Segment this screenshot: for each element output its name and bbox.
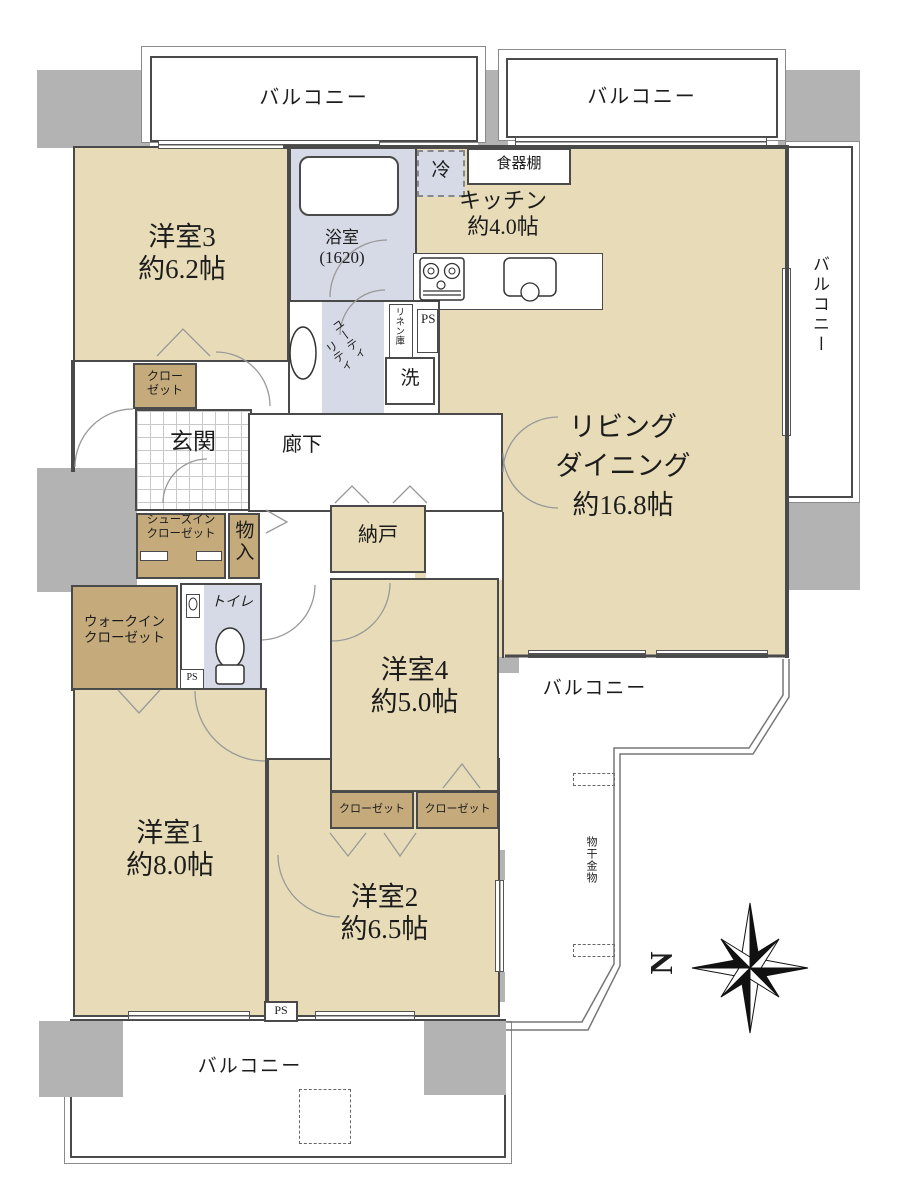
north-label: N — [643, 941, 681, 985]
living-dining-label: リビング ダイニング 約16.8帖 — [523, 408, 723, 525]
wall-block-left-mid — [37, 468, 137, 592]
refrigerator-label: 冷 — [417, 160, 465, 182]
corridor-gap — [426, 512, 503, 580]
wall-block-top-right — [778, 70, 860, 148]
evacuation-hatch — [299, 1089, 351, 1144]
bathroom-label: 浴室 (1620) — [292, 228, 392, 268]
closet-b-label: クローゼット — [416, 803, 499, 816]
balcony-top-right-label: バルコニー — [506, 86, 778, 110]
pipe-space-bottom-label: PS — [264, 1003, 298, 1017]
storeroom-label: 納戸 — [330, 524, 426, 548]
window-ld-south-1 — [528, 650, 646, 658]
entrance-hall — [135, 409, 252, 511]
window-east-living — [782, 268, 791, 436]
room1-label: 洋室1 約8.0帖 — [73, 818, 267, 882]
entrance-label: 玄関 — [137, 428, 249, 455]
laundry-hardware-label: 物干金物 — [584, 836, 597, 884]
window-room1-south-2 — [315, 1011, 415, 1020]
room4-label: 洋室4 約5.0帖 — [330, 655, 499, 719]
balcony-mid-label: バルコニー — [505, 678, 685, 700]
washer-label: 洗 — [385, 368, 435, 390]
pipe-space-utility-label: PS — [417, 311, 438, 326]
window-top-left — [158, 140, 380, 149]
toilet-label: トイレ — [204, 595, 260, 612]
balcony-right-label: バルコニー — [809, 255, 829, 355]
kitchen-counter — [413, 253, 603, 310]
walk-in-closet-label: ウォークイン クローゼット — [71, 614, 178, 646]
bathtub — [299, 156, 399, 216]
laundry-hardware-1 — [573, 773, 615, 786]
window-ld-south-2 — [656, 650, 768, 658]
hallway-label: 廊下 — [252, 434, 352, 458]
room3-label: 洋室3 約6.2帖 — [77, 222, 287, 286]
shoes-closet-slot-1 — [140, 551, 168, 561]
corridor — [248, 413, 503, 512]
kitchen-label: キッチン 約4.0帖 — [413, 188, 593, 240]
linen-label: リネン庫 — [392, 307, 403, 345]
closet-a-label: クローゼット — [330, 803, 414, 816]
window-room1-south-1 — [128, 1011, 250, 1020]
wall-block-bottom-left-2 — [39, 1021, 123, 1097]
shoes-closet-slot-2 — [196, 551, 222, 561]
toilet-paper-holder — [186, 594, 200, 618]
cupboard-label: 食器棚 — [467, 156, 571, 174]
pipe-space-toilet-label: PS — [180, 672, 204, 684]
room2-label: 洋室2 約6.5帖 — [268, 882, 501, 946]
window-top-right — [515, 137, 767, 146]
shoes-in-closet-label: シューズイン クローゼット — [136, 514, 226, 541]
laundry-hardware-2 — [573, 944, 615, 957]
storage-compartment-label: 物入 — [231, 520, 253, 564]
compass-rose-icon — [692, 903, 808, 1033]
wall-block-right-mid — [780, 497, 860, 590]
balcony-top-left-label: バルコニー — [150, 87, 478, 111]
wall-block-top-left — [37, 70, 150, 148]
room3-closet-label: クロー ゼット — [133, 369, 197, 397]
floor-plan: バルコニー バルコニー バルコニー バルコニー バルコニー 洋室3 約6.2帖 … — [0, 0, 897, 1200]
wall-block-bottom-right-2 — [424, 1021, 506, 1095]
balcony-bottom-label: バルコニー — [120, 1056, 380, 1078]
